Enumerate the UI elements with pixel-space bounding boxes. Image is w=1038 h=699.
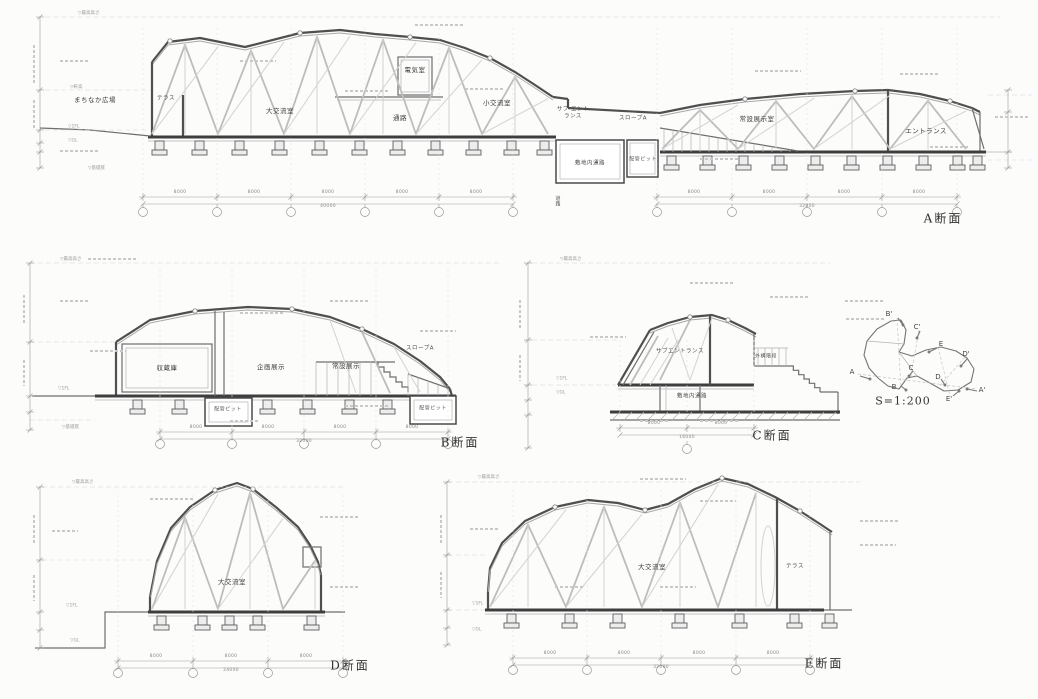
room-label-ext-stairs: 外構階段 <box>755 355 777 360</box>
annotation-note <box>860 520 900 522</box>
dim-total-label: 32000 <box>799 204 815 209</box>
room-label-sub-entrance-a: サブ エントランス <box>554 106 592 119</box>
section-title-c: C断面 <box>752 427 791 444</box>
annotation-note <box>33 515 35 545</box>
dim-total-label: 32000 <box>296 439 312 444</box>
keyplan-marker-d2: D' <box>962 350 969 358</box>
dim-label: 8000 <box>470 190 483 195</box>
dim-label: 8000 <box>300 654 313 659</box>
level-label: ▽最高高さ <box>60 256 81 262</box>
room-label-slope-b: スロープA <box>406 346 434 352</box>
level-label: ▽GL <box>70 639 79 644</box>
annotation-note <box>900 73 940 75</box>
annotation-note <box>33 575 35 601</box>
level-label: ▽最高高さ <box>478 474 499 480</box>
annotation-note <box>23 360 25 386</box>
annotation-note <box>60 300 90 302</box>
dim-label: 8000 <box>406 425 419 430</box>
dim-label: 8000 <box>838 190 851 195</box>
annotation-note <box>415 24 465 26</box>
room-label-entrance: エントランス <box>905 128 947 135</box>
keyplan-marker-a: A <box>850 368 855 376</box>
annotation-note <box>330 300 370 302</box>
annotation-note <box>320 516 360 518</box>
level-label: ▽1FL <box>58 387 69 392</box>
dim-label: 8000 <box>544 651 557 656</box>
section-title-d: D断面 <box>330 657 370 674</box>
room-label-storage: 収蔵庫 <box>157 365 178 372</box>
room-label-sub-entrance-c: サブエントランス <box>656 349 704 355</box>
room-label-pipe-pit-b-right: 配管ピット <box>419 407 447 412</box>
room-label-terrace-e: テラス <box>786 564 804 570</box>
annotation-note <box>60 150 100 152</box>
room-label-terrace-a: テラス <box>157 96 175 102</box>
annotation-note <box>700 158 740 160</box>
annotation-note <box>330 586 360 588</box>
level-label: ▽1FL <box>472 602 483 607</box>
dim-label: 8000 <box>150 654 163 659</box>
level-label: ▽基礎底 <box>88 165 105 171</box>
annotation-note <box>640 420 670 422</box>
section-title-e: E断面 <box>805 655 844 672</box>
level-label: ▽1FL <box>68 125 79 130</box>
keyplan-marker-c2: C' <box>914 323 921 331</box>
room-label-large-hall-e: 大交流室 <box>638 564 666 571</box>
dim-label: 8000 <box>763 190 776 195</box>
annotation-note <box>690 282 734 284</box>
annotation-note <box>555 586 585 588</box>
annotation-note <box>660 586 696 588</box>
section-title-a: A断面 <box>924 210 963 227</box>
annotation-note <box>590 336 626 338</box>
keyplan-marker-e: E <box>939 340 943 348</box>
annotation-note <box>465 88 503 90</box>
room-label-large-hall-d: 大交流室 <box>218 579 246 586</box>
annotation-note <box>845 300 885 302</box>
annotation-note <box>640 478 686 480</box>
road-label: 道路 <box>555 196 560 207</box>
room-label-corridor: 通路 <box>393 115 407 122</box>
room-label-large-hall-a: 大交流室 <box>266 108 294 115</box>
annotation-note <box>440 572 442 598</box>
annotation-note <box>700 500 736 502</box>
dim-total-label: 16000 <box>679 435 695 440</box>
annotation-note <box>33 100 35 130</box>
section-title-b: B断面 <box>441 434 480 451</box>
level-label: ▽最高高さ <box>72 479 93 485</box>
dim-label: 8000 <box>322 190 335 195</box>
keyplan-marker-c: C <box>909 364 914 372</box>
dim-total-label: 32000 <box>653 665 669 670</box>
annotation-note <box>345 90 389 92</box>
annotation-note <box>930 146 970 148</box>
dim-label: 8000 <box>688 190 701 195</box>
annotation-note <box>88 258 138 260</box>
annotation-note <box>150 498 194 500</box>
annotation-note <box>700 420 740 422</box>
annotation-note <box>52 530 78 532</box>
room-label-pipe-pit-b-left: 配管ピット <box>214 408 242 413</box>
room-label-permanent-exhibit-a: 常設展示室 <box>740 116 775 123</box>
annotation-note <box>470 528 500 530</box>
annotation-note <box>846 318 886 320</box>
level-label: ▽GL <box>68 139 77 144</box>
dim-label: 8000 <box>913 190 926 195</box>
room-label-permanent-exhibit-b: 常設展示 <box>332 363 360 370</box>
annotation-note <box>860 544 896 546</box>
dim-label: 8000 <box>174 190 187 195</box>
room-label-electrical: 電気室 <box>405 67 426 74</box>
room-label-planned-exhibit: 企画展示 <box>257 364 285 371</box>
annotation-note <box>420 330 456 332</box>
level-label: ▽GL <box>472 628 481 633</box>
dim-label: 8000 <box>767 651 780 656</box>
dim-label: 8000 <box>225 654 238 659</box>
dim-total-label: 40000 <box>320 204 336 209</box>
level-label: ▽1FL <box>66 604 77 609</box>
annotation-note <box>23 295 25 325</box>
cad-drawing <box>0 0 1038 699</box>
keyplan-marker-d: D <box>935 373 940 381</box>
annotation-note <box>519 355 521 381</box>
annotation-note <box>345 405 389 407</box>
level-label: ▽軒高 <box>70 84 82 90</box>
dim-label: 8000 <box>618 651 631 656</box>
dim-label: 8000 <box>190 425 203 430</box>
annotation-note <box>240 60 276 62</box>
room-label-site-passage-c: 敷地内通路 <box>677 394 707 400</box>
annotation-note <box>230 420 260 422</box>
keyplan-marker-b2: B' <box>886 310 893 318</box>
annotation-note <box>770 296 810 298</box>
annotation-note <box>440 515 442 545</box>
keyplan-marker-e2: E' <box>946 395 952 403</box>
level-label: ▽基礎底 <box>62 424 79 430</box>
level-label: ▽最高高さ <box>78 10 99 16</box>
annotation-note <box>995 116 1029 118</box>
room-label-small-hall: 小交流室 <box>483 100 511 107</box>
drawing-sheet: A断面 B断面 C断面 D断面 E断面 S=1:200 まちなか広場 テラス 大… <box>0 0 1038 699</box>
keyplan-marker-b: B <box>892 383 897 391</box>
dim-label: 8000 <box>248 190 261 195</box>
level-label: ▽GL <box>556 391 565 396</box>
dim-label: 8000 <box>334 425 347 430</box>
room-label-site-passage-a: 敷地内通路 <box>575 161 605 167</box>
room-label-pipe-pit-a: 配管ピット <box>629 158 657 163</box>
annotation-note <box>240 312 284 314</box>
room-label-slope-a: スロープA <box>619 116 647 122</box>
annotation-note <box>60 60 90 62</box>
room-label-plaza: まちなか広場 <box>74 97 116 104</box>
annotation-note <box>519 300 521 330</box>
annotation-note <box>755 70 801 72</box>
level-label: ▽最高高さ <box>560 256 581 262</box>
dim-total-label: 24000 <box>223 668 239 673</box>
dim-label: 8000 <box>693 651 706 656</box>
keyplan-scale: S=1:200 <box>875 395 930 408</box>
dim-label: 8000 <box>262 425 275 430</box>
keyplan-marker-a2: A' <box>979 386 986 394</box>
dim-label: 8000 <box>396 190 409 195</box>
annotation-note <box>33 45 35 85</box>
level-label: ▽1FL <box>556 377 567 382</box>
annotation-note <box>90 350 126 352</box>
